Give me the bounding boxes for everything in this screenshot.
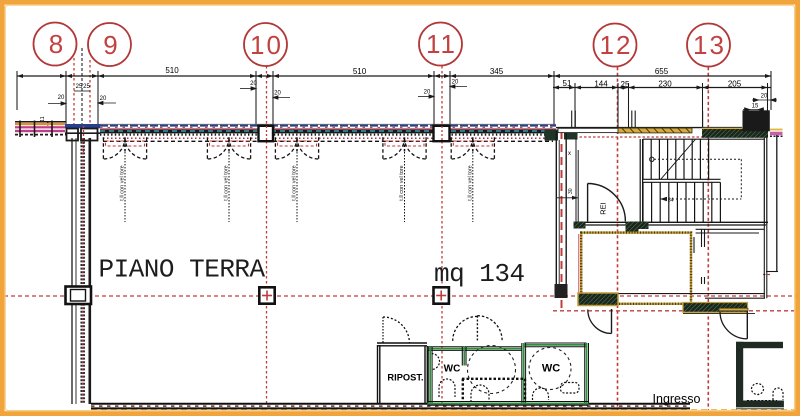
svg-text:mq 134: mq 134 [434, 259, 525, 289]
svg-text:20: 20 [250, 81, 257, 87]
svg-text:t.ll con vel tore: t.ll con vel tore [224, 165, 230, 200]
svg-text:51: 51 [563, 79, 572, 88]
svg-text:9: 9 [103, 30, 117, 60]
svg-text:205: 205 [728, 80, 742, 89]
svg-text:t.ll con vel tore: t.ll con vel tore [292, 165, 298, 200]
svg-text:15: 15 [752, 104, 759, 110]
svg-text:11: 11 [426, 29, 457, 59]
svg-text:8: 8 [49, 29, 63, 59]
svg-text:t.ll con vel tore: t.ll con vel tore [467, 165, 473, 200]
svg-text:655: 655 [655, 67, 669, 76]
svg-text:t.ll con vel tore: t.ll con vel tore [399, 165, 405, 200]
svg-text:510: 510 [353, 67, 367, 76]
svg-text:PIANO TERRA: PIANO TERRA [99, 255, 266, 285]
svg-text:230: 230 [658, 80, 672, 89]
svg-text:13: 13 [693, 30, 726, 60]
svg-text:144: 144 [594, 80, 608, 89]
svg-text:WC: WC [444, 364, 461, 375]
svg-text:WC: WC [542, 363, 560, 375]
svg-text:25: 25 [621, 80, 630, 89]
svg-text:REI: REI [599, 202, 608, 215]
svg-text:25: 25 [76, 84, 83, 90]
svg-text:510: 510 [165, 66, 179, 75]
svg-text:12: 12 [600, 30, 633, 60]
svg-text:25: 25 [83, 84, 90, 90]
svg-text:20: 20 [58, 95, 65, 101]
svg-text:RIPOST.: RIPOST. [387, 373, 423, 383]
svg-text:20: 20 [424, 90, 431, 96]
svg-text:30: 30 [568, 188, 574, 194]
svg-text:345: 345 [490, 67, 504, 76]
svg-text:34: 34 [668, 198, 674, 204]
svg-text:t.ll con vel tore: t.ll con vel tore [120, 165, 126, 200]
svg-text:x: x [568, 151, 571, 157]
svg-text:20: 20 [761, 94, 768, 100]
svg-text:10: 10 [250, 30, 283, 60]
